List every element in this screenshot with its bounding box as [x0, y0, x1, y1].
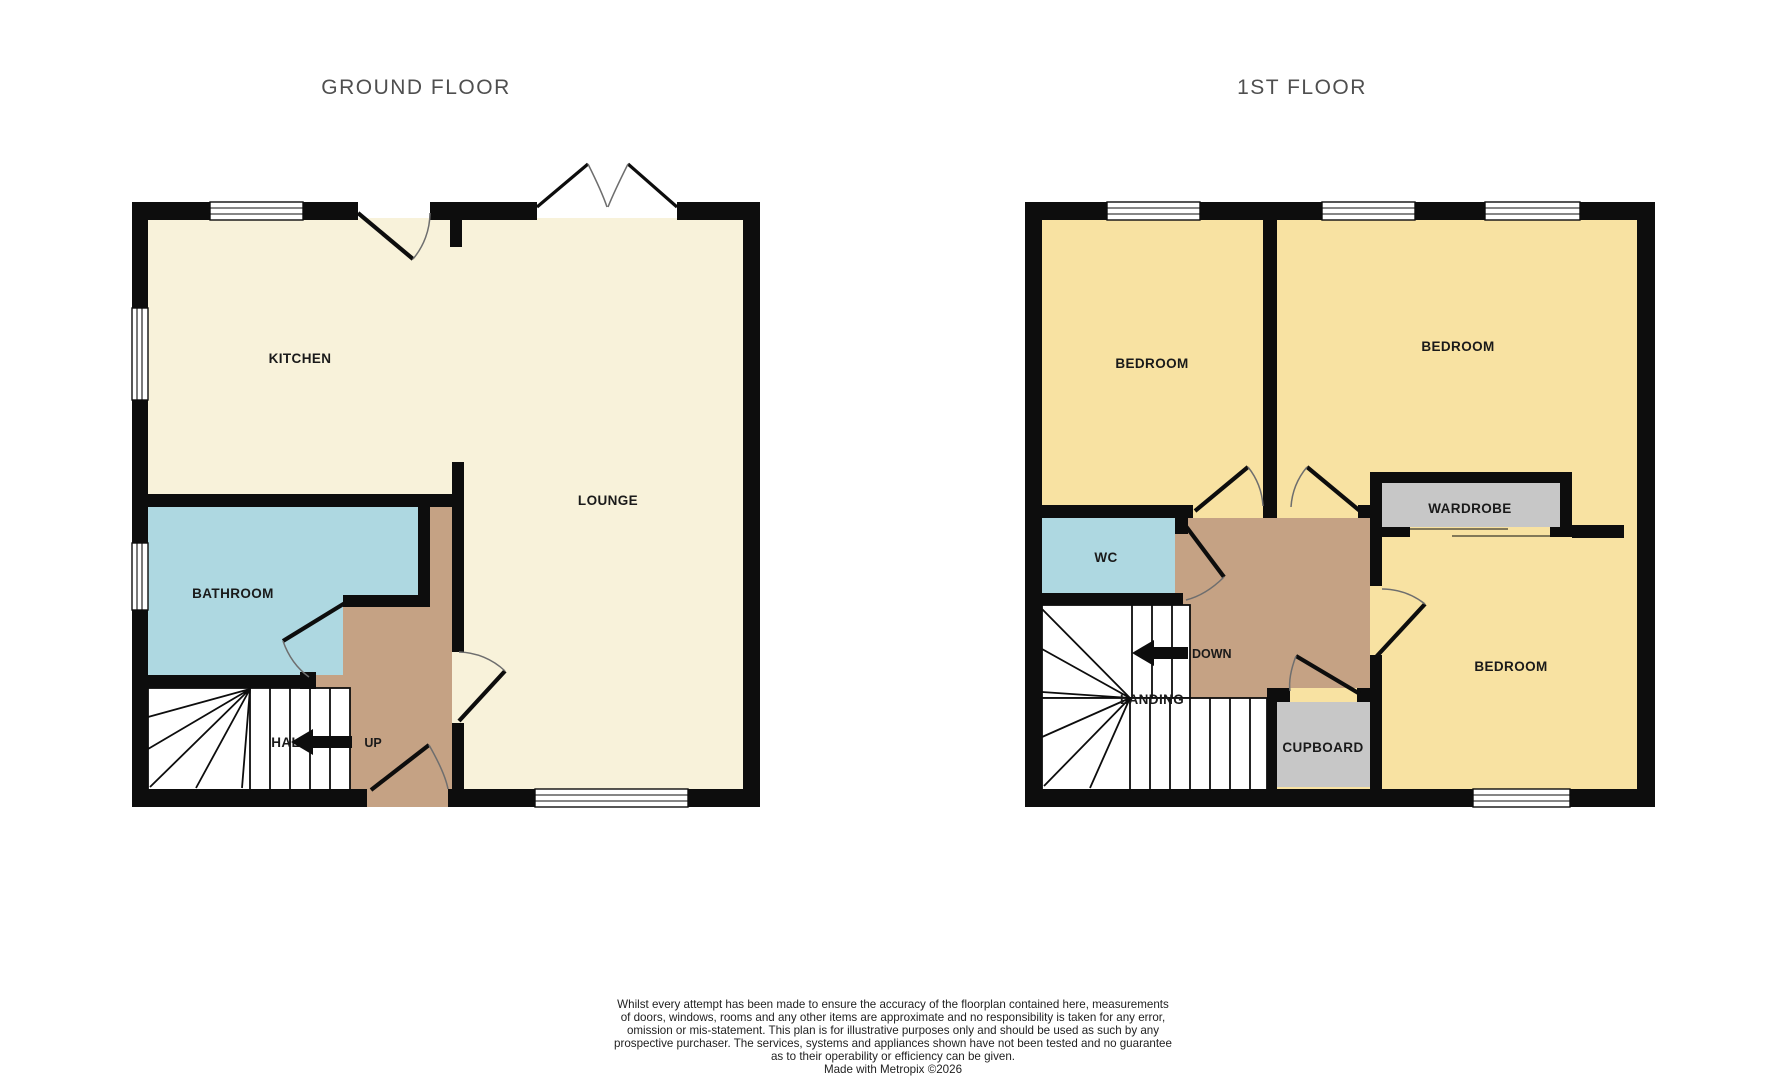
bedroom-left-window — [1107, 202, 1200, 220]
disclaimer-line-2: of doors, windows, rooms and any other i… — [621, 1011, 1166, 1024]
wardrobe-label: WARDROBE — [1428, 501, 1511, 516]
ground-floor-title: GROUND FLOOR — [321, 76, 511, 99]
floorplan-page: KITCHEN LOUNGE BATHROOM HALL UP — [0, 0, 1786, 1080]
bedroom-left-label: BEDROOM — [1115, 356, 1188, 371]
down-label: DOWN — [1192, 647, 1232, 661]
front-door-threshold — [367, 789, 448, 807]
cupboard-label: CUPBOARD — [1282, 740, 1363, 755]
bathroom-label: BATHROOM — [192, 586, 274, 601]
first-floor-plan: BEDROOM BEDROOM BEDROOM WARDROBE WC LAND… — [1025, 202, 1655, 807]
kitchen-label: KITCHEN — [269, 351, 332, 366]
french-doors — [537, 164, 677, 207]
bedroom-bottom-label: BEDROOM — [1474, 659, 1547, 674]
bedroom-right-label: BEDROOM — [1421, 339, 1494, 354]
landing-floor — [1175, 518, 1370, 698]
bathroom-side-window — [132, 543, 148, 610]
bedroom-right-window-2 — [1485, 202, 1580, 220]
first-floor-title: 1ST FLOOR — [1237, 76, 1367, 99]
wc-label: WC — [1094, 550, 1117, 565]
disclaimer: Whilst every attempt has been made to en… — [614, 998, 1172, 1076]
kitchen-side-window — [132, 308, 148, 400]
lounge-bottom-window — [535, 789, 688, 807]
floorplan-canvas: KITCHEN LOUNGE BATHROOM HALL UP — [0, 0, 1786, 1080]
disclaimer-line-4: prospective purchaser. The services, sys… — [614, 1037, 1172, 1050]
bedroom-right-window-1 — [1322, 202, 1415, 220]
bedroom-bottom-window — [1473, 789, 1570, 807]
disclaimer-line-5: as to their operability or efficiency ca… — [771, 1050, 1015, 1063]
landing-label: LANDING — [1120, 692, 1184, 707]
disclaimer-line-3: omission or mis-statement. This plan is … — [627, 1024, 1159, 1037]
lounge-label: LOUNGE — [578, 493, 638, 508]
up-label: UP — [364, 736, 381, 750]
disclaimer-credit: Made with Metropix ©2026 — [824, 1063, 962, 1076]
ground-floor-plan: KITCHEN LOUNGE BATHROOM HALL UP — [132, 164, 760, 807]
kitchen-top-window — [210, 202, 303, 220]
disclaimer-line-1: Whilst every attempt has been made to en… — [617, 998, 1169, 1011]
